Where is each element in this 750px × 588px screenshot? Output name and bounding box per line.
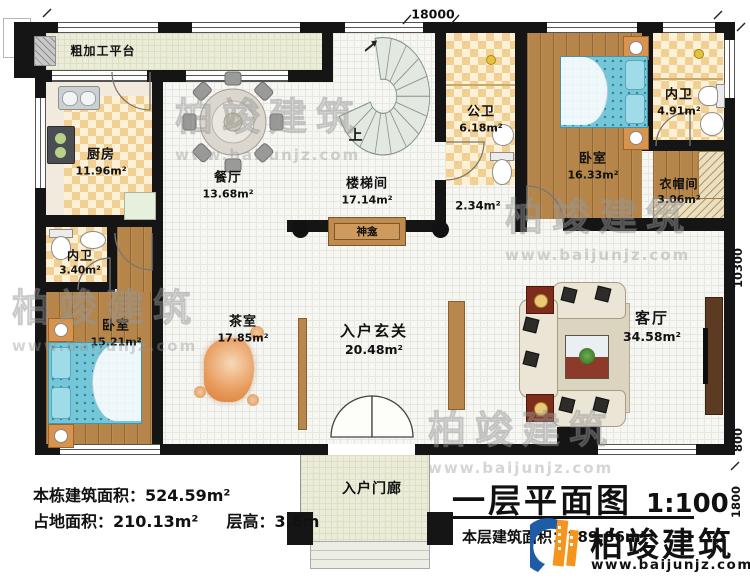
wall-stair-left — [322, 22, 333, 82]
side-table-top — [526, 286, 554, 314]
prep-sink-unit — [34, 36, 56, 66]
company-website: www.baijunjz.com — [591, 557, 750, 573]
title-block: 一层平面图 1:100 — [452, 474, 729, 522]
stat-total-building-area: 本栋建筑面积：524.59m² — [33, 482, 230, 506]
dimension-top-width: 18000 — [411, 7, 455, 22]
floor-plan: 神龛 粗加工平台 厨房 — [0, 0, 750, 588]
bed-w-duvet — [92, 343, 141, 421]
public-bath-knob — [486, 55, 496, 65]
plan-scale: 1:100 — [646, 489, 729, 519]
bed-w — [48, 342, 142, 424]
dimension-right-depth: 10300 — [731, 248, 745, 288]
bed-ne-duvet — [561, 57, 608, 125]
room-label-cloakroom: 衣帽间 3.06m² — [657, 177, 700, 207]
ensuite-ne-sink — [700, 112, 724, 136]
room-label-kitchen: 厨房 11.96m² — [75, 147, 126, 178]
porch-pillar-right — [427, 512, 453, 545]
wall-bedroom-ne-bottom-b — [563, 218, 735, 231]
dining-table-set — [181, 70, 285, 174]
room-label-foyer: 入户玄关 20.48m² — [340, 322, 408, 358]
room-label-ensuite-w: 内卫 3.40m² — [59, 248, 100, 277]
wall-tearoom-left — [152, 227, 163, 455]
stair-up-label: 上 — [349, 127, 364, 145]
stat-footprint-area: 占地面积：210.13m² — [33, 508, 198, 532]
stat-floor-height: 层高：3.6m — [226, 508, 319, 532]
kitchen-fridge — [124, 192, 156, 220]
column-right — [432, 221, 449, 238]
wall-ensuite-w-bottom — [35, 282, 115, 292]
window-right-ensuite — [724, 40, 735, 98]
window-bottom-living — [598, 444, 696, 455]
dimension-right-lower: 800 — [731, 428, 745, 452]
window-kitchen-top — [52, 70, 147, 82]
foyer-cabinet-right — [448, 301, 465, 410]
wall-bedroom-ne-bottom-a — [515, 218, 527, 231]
bed-w-pillow-2 — [51, 387, 71, 419]
wall-ensuite-w-right — [107, 227, 117, 289]
side-table-bottom — [526, 394, 554, 422]
column-left — [292, 221, 309, 238]
wall-left — [35, 22, 46, 455]
room-label-public-bath: 公卫 6.18m² — [459, 104, 502, 135]
bed-ne — [560, 56, 648, 128]
room-label-ensuite-ne: 内卫 4.91m² — [657, 87, 700, 118]
window-left-kitchen — [35, 98, 46, 188]
window-top-1 — [58, 22, 158, 33]
public-bath-toilet — [492, 159, 512, 185]
tea-pebble-1 — [194, 386, 206, 398]
wall-ensuite-ne-bottom — [642, 140, 735, 151]
passage-area-label: 2.34m² — [455, 199, 500, 214]
window-top-5 — [663, 22, 715, 33]
window-bottom-bedroom — [60, 444, 160, 455]
porch-steps — [310, 541, 430, 569]
public-bath-divider — [446, 84, 515, 86]
bed-ne-pillow-2 — [625, 94, 645, 124]
room-label-porch: 入户门廊 — [342, 480, 402, 498]
window-top-4 — [547, 22, 637, 33]
foyer-screen-left — [298, 318, 307, 430]
kitchen-sink — [58, 86, 100, 110]
room-label-living-room: 客厅 34.58m² — [623, 309, 681, 345]
ensuite-w-sink — [80, 231, 106, 249]
tea-pebble-3 — [247, 394, 259, 406]
stat-row: 占地面积：210.13m² 层高：3.6m — [33, 508, 319, 532]
nightstand-w-1 — [48, 318, 74, 342]
shrine-cabinet: 神龛 — [328, 217, 406, 246]
room-label-tea-room: 茶室 17.85m² — [217, 314, 268, 345]
ensuite-ne-divider — [653, 78, 723, 80]
wall-publicbath-right — [515, 22, 527, 232]
coffee-table-plant — [579, 348, 595, 364]
spiral-stair — [338, 30, 432, 172]
shrine-label: 神龛 — [357, 224, 378, 239]
wall-publicbath-left-upper — [435, 22, 446, 142]
wall-living-pier — [557, 427, 600, 455]
tea-stone-table — [204, 338, 254, 402]
company-logo-icon — [530, 514, 588, 576]
room-label-prep-platform: 粗加工平台 — [70, 44, 135, 60]
bed-ne-pillow-1 — [625, 60, 645, 90]
ensuite-ne-knob — [694, 49, 704, 59]
room-label-bedroom-w: 卧室 15.21m² — [90, 318, 141, 349]
window-top-2 — [192, 22, 300, 33]
room-label-stairwell: 楼梯间 17.14m² — [341, 176, 392, 207]
nightstand-ne-2 — [623, 126, 649, 150]
tv-screen — [703, 328, 708, 384]
wall-entry-stub-right — [415, 444, 453, 455]
room-label-bedroom-ne: 卧室 16.33m² — [567, 151, 618, 182]
bed-w-pillow-1 — [51, 347, 71, 379]
room-label-dining: 餐厅 13.68m² — [202, 170, 253, 201]
wall-entry-stub-left — [287, 444, 328, 455]
hallway-w-floor — [117, 227, 152, 296]
ensuite-ne-toilet — [698, 86, 718, 106]
kitchen-stove — [47, 126, 75, 164]
coffee-table — [565, 335, 609, 379]
dimension-porch-depth: 1800 — [729, 486, 743, 518]
nightstand-w-2 — [48, 424, 74, 448]
